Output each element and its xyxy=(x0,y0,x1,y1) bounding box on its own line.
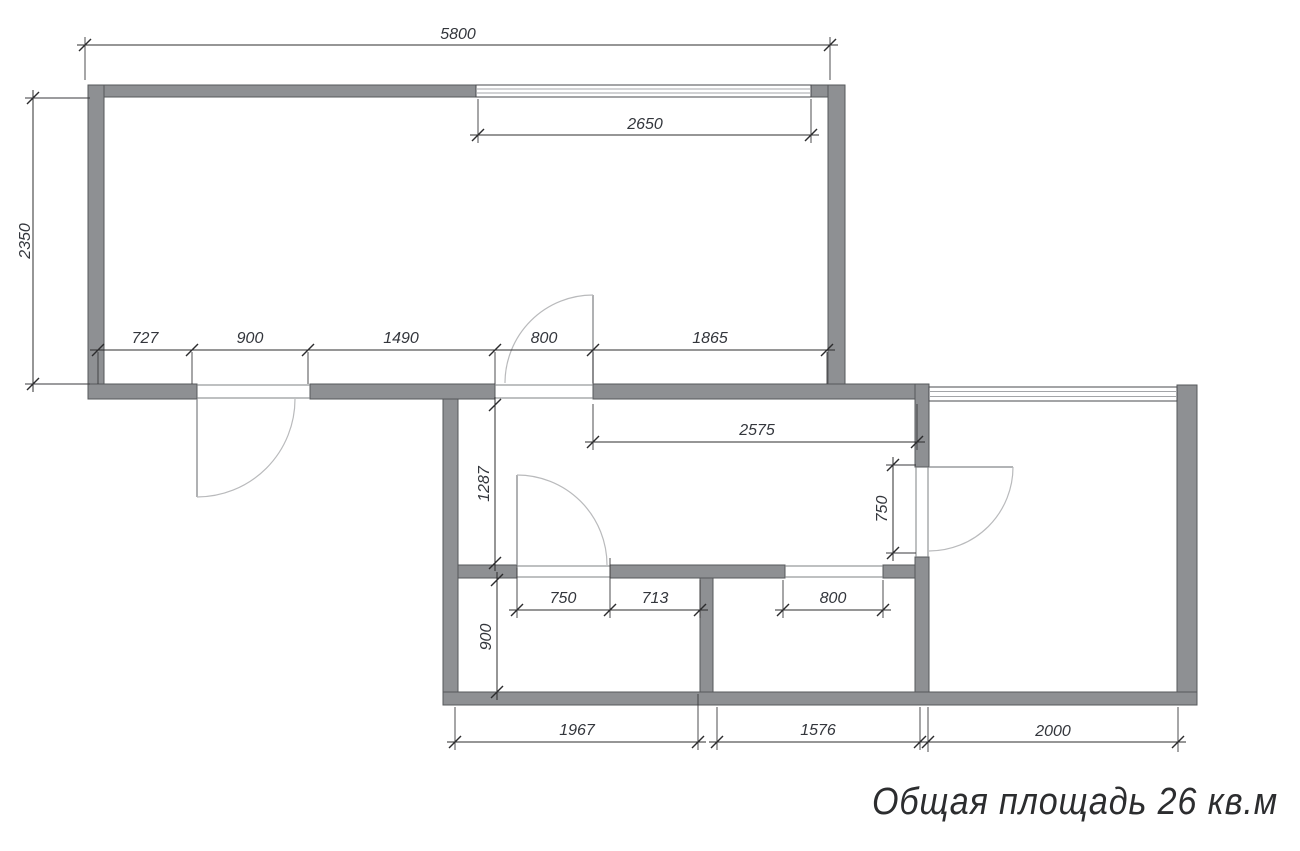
right-room-window xyxy=(929,387,1177,401)
floor-plan-svg: 5800 2650 2350 727 900 1490 800 1865 xyxy=(0,0,1300,851)
corridor-left-wall xyxy=(443,399,458,705)
dim-row-1490: 1490 xyxy=(383,330,419,347)
top-window xyxy=(476,85,811,97)
total-area-caption: Общая площадь 26 кв.м xyxy=(872,781,1278,823)
dim-row-727: 727 xyxy=(132,330,160,347)
bath-door-swing-arc xyxy=(517,475,607,565)
bottom-outer-wall xyxy=(443,692,1197,705)
dim-row-900: 900 xyxy=(237,330,264,347)
dim-seg-713: 713 xyxy=(642,590,669,607)
dim-right-door: 750 xyxy=(874,496,891,523)
corridor-bottom-wall-1 xyxy=(458,565,517,578)
opening-faces xyxy=(197,385,928,577)
right-room-door-swing-arc xyxy=(929,467,1013,551)
dim-kitchen-opening: 800 xyxy=(820,590,847,607)
dim-bottom-right: 2000 xyxy=(1034,723,1071,740)
dim-left-height: 2350 xyxy=(17,223,34,260)
dim-room-depth: 900 xyxy=(478,624,495,651)
dim-row-800: 800 xyxy=(531,330,558,347)
dim-bath-door: 750 xyxy=(550,590,577,607)
mid-band-wall-3 xyxy=(593,384,929,399)
dim-hall-length: 2575 xyxy=(738,422,775,439)
dim-hall-width: 1287 xyxy=(476,465,493,502)
dim-bottom-left: 1967 xyxy=(559,722,596,739)
dim-top-total: 5800 xyxy=(440,26,476,43)
doors xyxy=(197,295,1013,565)
dim-row-1865: 1865 xyxy=(692,330,728,347)
main-room-right-wall xyxy=(828,85,845,398)
dim-bottom-middle: 1576 xyxy=(800,722,836,739)
right-room-left-wall-bottom xyxy=(915,557,929,705)
corridor-bottom-wall-2 xyxy=(610,565,785,578)
right-room-right-wall xyxy=(1177,385,1197,705)
entry-door-swing-arc xyxy=(197,399,295,497)
mid-band-wall-1 xyxy=(88,384,197,399)
dim-top-window: 2650 xyxy=(626,116,663,133)
mid-band-wall-2 xyxy=(310,384,495,399)
windows xyxy=(476,85,1177,401)
floor-plan-canvas: 5800 2650 2350 727 900 1490 800 1865 xyxy=(0,0,1300,851)
bottom-rooms-divider-wall xyxy=(700,578,713,705)
corridor-bottom-wall-3 xyxy=(883,565,915,578)
top-wall-left xyxy=(88,85,476,97)
